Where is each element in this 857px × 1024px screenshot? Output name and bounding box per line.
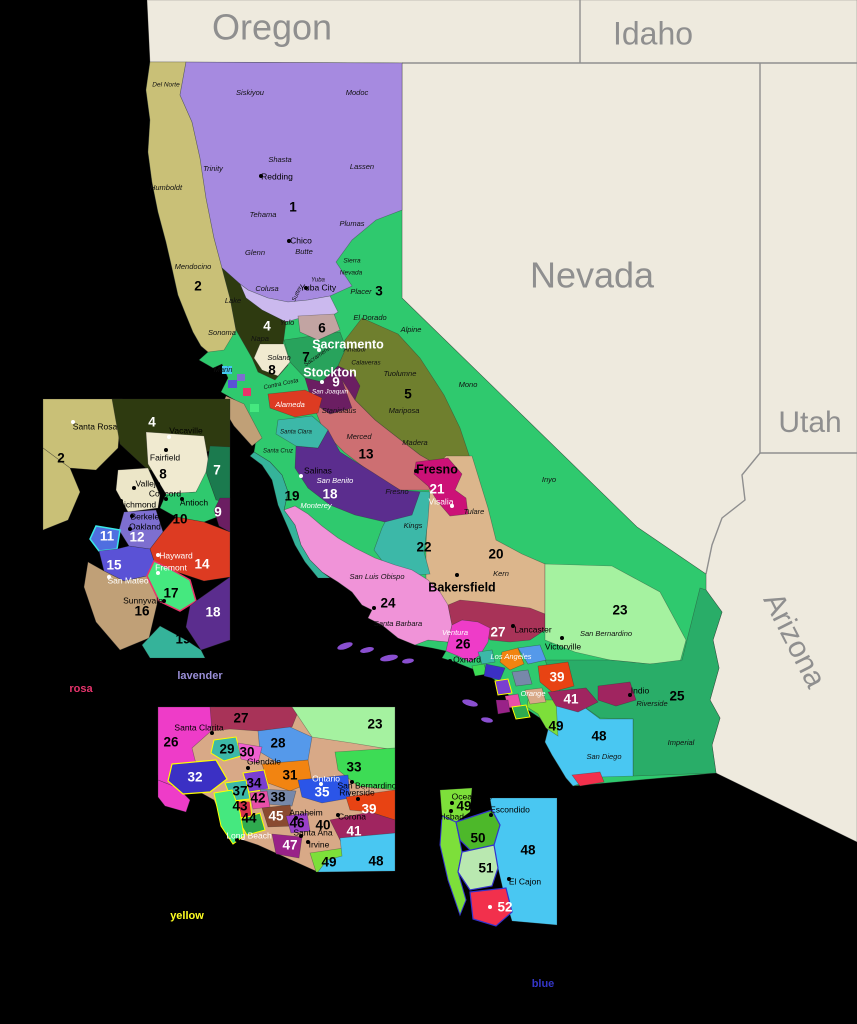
county-stanislaus: Stanislaus: [322, 406, 357, 415]
la-blob-47: [496, 700, 510, 714]
num-5: 5: [404, 387, 412, 402]
num-19: 19: [175, 632, 190, 647]
county-fresno: Fresno: [385, 487, 408, 496]
note-lavender: lavender: [177, 670, 223, 682]
city-richmond: Richmond: [118, 499, 157, 509]
num-25: 25: [669, 689, 685, 704]
city-riverside: Riverside: [339, 787, 375, 797]
num-48: 48: [368, 854, 384, 869]
num-27: 27: [233, 711, 248, 726]
county-riverside: Riverside: [636, 699, 667, 708]
num-41: 41: [563, 692, 579, 707]
county-trinity: Trinity: [203, 164, 224, 173]
city-irvine: Irvine: [309, 839, 330, 849]
big-sacramento: Sacramento: [312, 337, 384, 351]
city-ontario: Ontario: [312, 773, 340, 783]
county-nevada: Nevada: [340, 270, 363, 277]
city-dot: [488, 905, 492, 909]
city-yuba-city: Yuba City: [300, 282, 337, 292]
county-plumas: Plumas: [339, 219, 364, 228]
sf-speck-3: [237, 374, 245, 381]
county-marin: Marin: [214, 365, 233, 374]
num-21: 21: [429, 482, 445, 497]
county-san-benito: San Benito: [317, 476, 354, 485]
city-visalia: Visalia: [429, 496, 454, 506]
num-13: 13: [358, 447, 374, 462]
num-50: 50: [470, 831, 485, 846]
map-stage: OregonIdahoNevadaUtahArizona Del NorteSi…: [0, 0, 857, 1024]
city-carlsbad: Carlsbad: [430, 811, 464, 821]
num-31: 31: [282, 768, 298, 783]
num-47: 47: [282, 838, 297, 853]
num-6: 6: [318, 321, 326, 336]
num-48: 48: [520, 843, 536, 858]
num-20: 20: [488, 547, 503, 562]
num-49: 49: [321, 855, 336, 870]
big-fresno: Fresno: [416, 462, 458, 476]
city-san-mateo: San Mateo: [107, 575, 148, 585]
county-mendocino: Mendocino: [175, 262, 212, 271]
county-yolo: Yolo: [280, 318, 295, 327]
city-lancaster: Lancaster: [514, 624, 551, 634]
city-oceanside: Oceanside: [452, 791, 493, 801]
num-4: 4: [263, 319, 271, 334]
county-alpine: Alpine: [400, 325, 422, 334]
num-27: 27: [490, 625, 505, 640]
city-vacaville: Vacaville: [169, 425, 203, 435]
county-san-luis-obispo: San Luis Obispo: [349, 572, 404, 581]
num-26: 26: [455, 637, 471, 652]
city-dot: [299, 474, 303, 478]
county-santa-cruz: Santa Cruz: [263, 449, 293, 455]
num-37: 37: [232, 784, 247, 799]
city-dot: [320, 380, 324, 384]
note-rosa: rosa: [69, 683, 93, 695]
city-santa-maria: Santa Maria: [322, 605, 368, 615]
city-el-cajon: El Cajon: [509, 876, 541, 886]
city-dot: [356, 797, 360, 801]
state-nevada: Nevada: [530, 255, 655, 296]
num-35: 35: [314, 785, 330, 800]
num-2: 2: [57, 451, 65, 466]
num-3: 3: [375, 284, 383, 299]
num-42: 42: [250, 791, 265, 806]
county-tuolumne: Tuolumne: [384, 369, 417, 378]
num-23: 23: [367, 717, 383, 732]
county-san-bernardino: San Bernardino: [580, 629, 632, 638]
big-bakersfield: Bakersfield: [428, 580, 495, 594]
num-17: 17: [163, 586, 178, 601]
state-oregon: Oregon: [212, 7, 332, 48]
num-2: 2: [194, 279, 202, 294]
city-escondido: Escondido: [490, 804, 530, 814]
city-victorville: Victorville: [545, 641, 581, 651]
note-yellow: yellow: [170, 910, 204, 922]
county-lake: Lake: [225, 296, 241, 305]
city-antioch: Antioch: [180, 497, 209, 507]
city-oxnard: Oxnard: [453, 654, 481, 664]
county-santa-barbara: Santa Barbara: [374, 619, 422, 628]
county-san-joaquin: San Joaquin: [312, 389, 349, 396]
num-1: 1: [289, 200, 297, 215]
num-12: 12: [129, 530, 144, 545]
city-dot: [450, 801, 454, 805]
num-52: 52: [497, 900, 512, 915]
city-dot: [448, 659, 452, 663]
county-modoc: Modoc: [346, 88, 369, 97]
county-colusa: Colusa: [255, 284, 278, 293]
city-fairfield: Fairfield: [150, 452, 181, 462]
num-18: 18: [322, 487, 338, 502]
num-33: 33: [346, 760, 362, 775]
city-oakland: Oakland: [129, 521, 161, 531]
city-vallejo: Vallejo: [136, 478, 161, 488]
county-madera: Madera: [402, 438, 427, 447]
num-22: 22: [416, 540, 431, 555]
county-imperial: Imperial: [668, 738, 695, 747]
county-mariposa: Mariposa: [389, 406, 420, 415]
city-dot: [246, 766, 250, 770]
city-long-beach: Long Beach: [226, 830, 272, 840]
city-redding: Redding: [261, 171, 293, 181]
city-santa-ana: Santa Ana: [293, 827, 333, 837]
num-15: 15: [106, 558, 122, 573]
city-berkeley: Berkeley: [130, 511, 164, 521]
num-7: 7: [213, 463, 221, 478]
num-9: 9: [214, 505, 222, 520]
num-4: 4: [148, 415, 156, 430]
num-18: 18: [205, 605, 221, 620]
county-glenn: Glenn: [245, 248, 265, 257]
big-stockton: Stockton: [303, 365, 356, 379]
county-del-norte: Del Norte: [152, 82, 180, 89]
city-concord: Concord: [149, 488, 181, 498]
county-solano: Solano: [267, 353, 290, 362]
county-humboldt: Humboldt: [150, 183, 183, 192]
num-8: 8: [268, 363, 276, 378]
num-51: 51: [478, 861, 494, 876]
num-29: 29: [219, 742, 234, 757]
city-fremont: Fremont: [155, 562, 187, 572]
city-salinas: Salinas: [304, 465, 332, 475]
county-inyo: Inyo: [542, 475, 556, 484]
num-41: 41: [346, 824, 362, 839]
city-indio: Indio: [631, 685, 650, 695]
city-chico: Chico: [290, 235, 312, 245]
county-san-diego: San Diego: [586, 752, 621, 761]
state-utah: Utah: [778, 406, 841, 439]
city-dot: [560, 636, 564, 640]
county-lassen: Lassen: [350, 162, 374, 171]
sf-speck-4: [243, 388, 251, 396]
county-kern: Kern: [493, 569, 509, 578]
county-monterey: Monterey: [300, 501, 333, 510]
county-tulare: Tulare: [464, 507, 485, 516]
num-11: 11: [100, 529, 115, 544]
num-34: 34: [246, 776, 262, 791]
num-39: 39: [549, 670, 564, 685]
state-idaho: Idaho: [613, 15, 693, 51]
city-hayward: Hayward: [159, 550, 193, 560]
county-orange: Orange: [520, 689, 545, 698]
num-38: 38: [270, 790, 286, 805]
city-glendale: Glendale: [247, 756, 281, 766]
num-48: 48: [591, 729, 607, 744]
city-sunnyvale: Sunnyvale: [123, 595, 163, 605]
county-sonoma: Sonoma: [208, 328, 236, 337]
sf-speck-5: [250, 404, 259, 412]
num-26: 26: [163, 735, 179, 750]
num-24: 24: [380, 596, 396, 611]
city-anaheim: Anaheim: [289, 807, 323, 817]
num-28: 28: [270, 736, 286, 751]
num-10: 10: [172, 512, 187, 527]
num-23: 23: [612, 603, 628, 618]
city-corona: Corona: [338, 811, 366, 821]
county-tehama: Tehama: [250, 210, 277, 219]
note-blue: blue: [532, 978, 555, 990]
num-49: 49: [548, 719, 563, 734]
city-santa-rosa: Santa Rosa: [73, 421, 118, 431]
city-dot: [455, 573, 459, 577]
num-45: 45: [268, 809, 284, 824]
county-butte: Butte: [295, 247, 313, 256]
county-alameda: Alameda: [274, 400, 305, 409]
county-los-angeles: Los Angeles: [490, 652, 531, 661]
num-16: 16: [134, 604, 150, 619]
county-placer: Placer: [350, 287, 372, 296]
county-mono: Mono: [459, 380, 478, 389]
county-sierra: Sierra: [343, 258, 361, 265]
city-dot: [372, 606, 376, 610]
county-siskiyou: Siskiyou: [236, 88, 265, 97]
county-shasta: Shasta: [268, 155, 291, 164]
num-44: 44: [241, 811, 257, 826]
num-19: 19: [284, 489, 299, 504]
num-14: 14: [194, 557, 210, 572]
county-merced: Merced: [346, 432, 372, 441]
county-el-dorado: El Dorado: [353, 313, 386, 322]
county-napa: Napa: [251, 334, 269, 343]
county-santa-clara: Santa Clara: [280, 430, 312, 436]
california-districts-map: OregonIdahoNevadaUtahArizona Del NorteSi…: [0, 0, 857, 1024]
num-7: 7: [302, 350, 310, 365]
county-kings: Kings: [404, 521, 423, 530]
num-32: 32: [187, 770, 202, 785]
city-dot: [167, 435, 171, 439]
sf-speck-2: [228, 380, 237, 388]
city-santa-clarita: Santa Clarita: [174, 722, 223, 732]
